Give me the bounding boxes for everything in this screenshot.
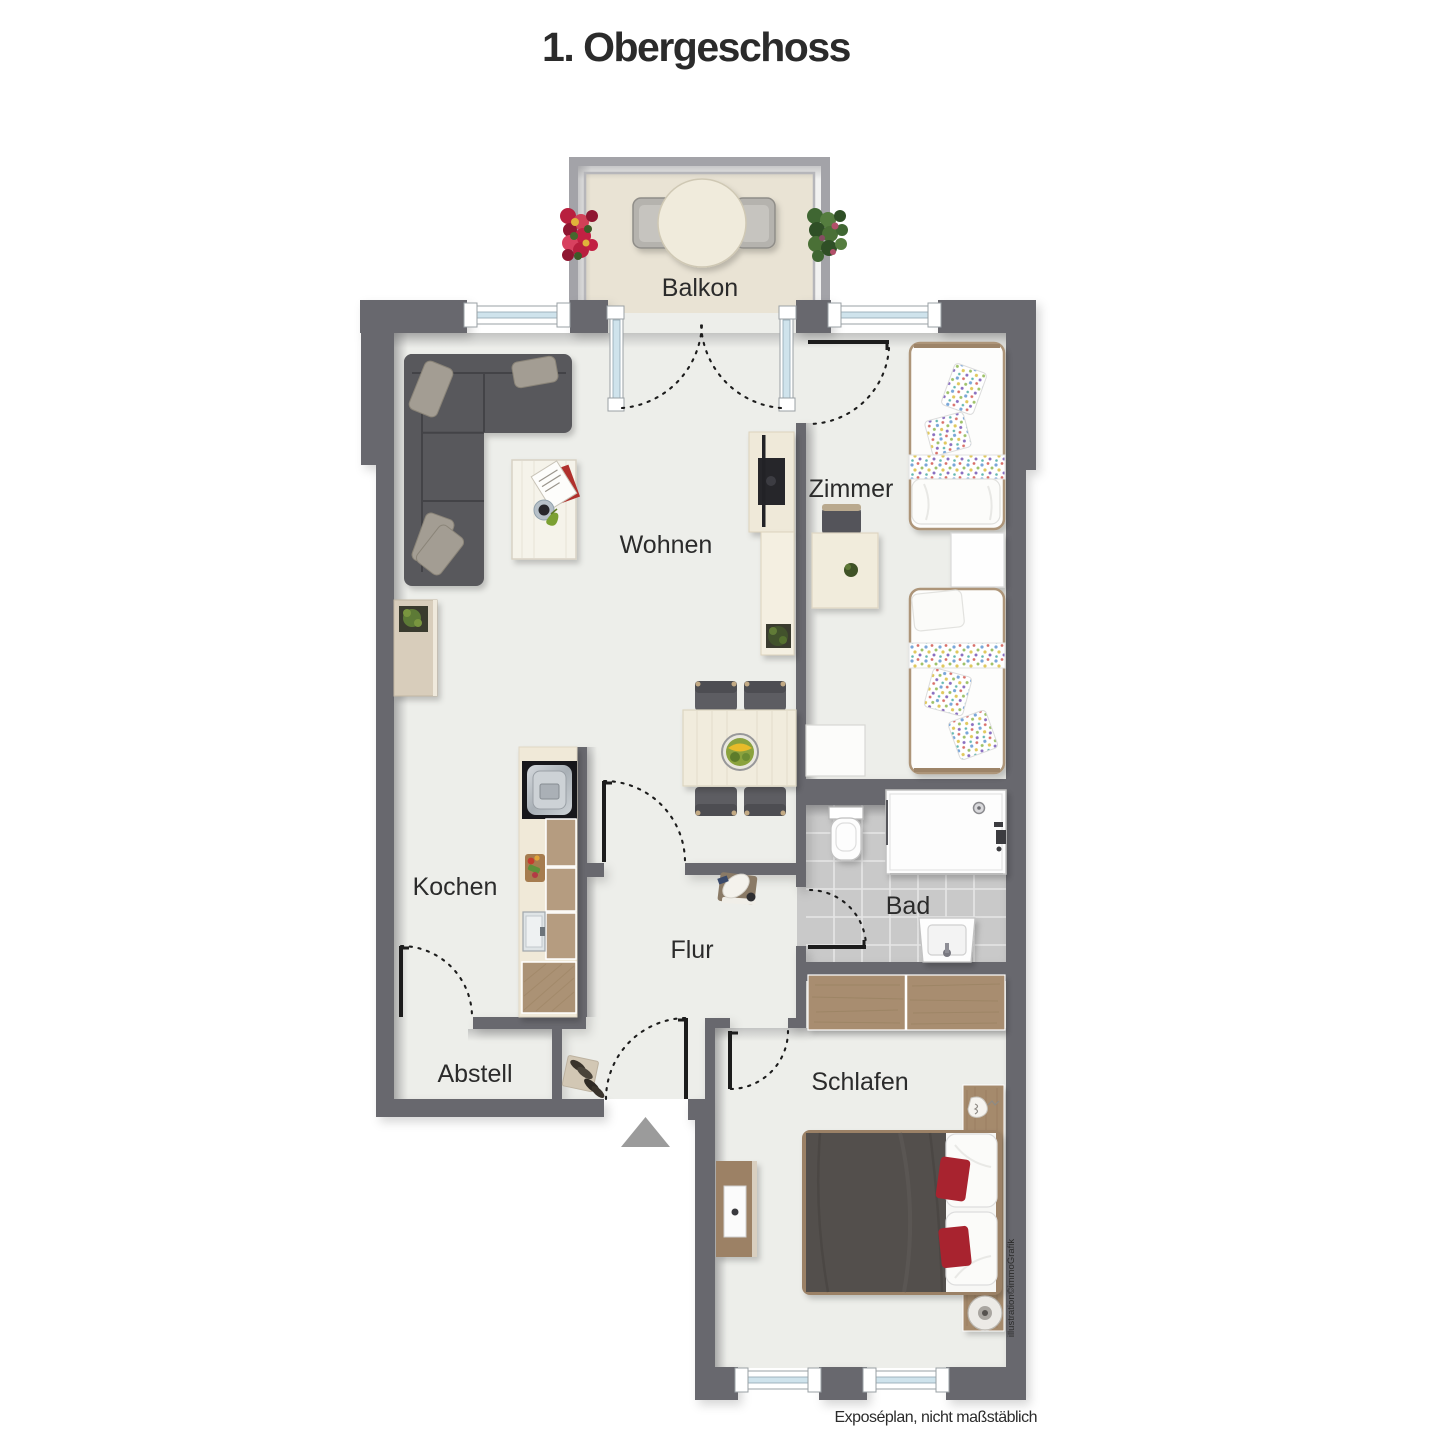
svg-text:Exposéplan, nicht maßstäblich: Exposéplan, nicht maßstäblich — [835, 1409, 1038, 1426]
svg-text:Zimmer: Zimmer — [809, 475, 894, 503]
svg-text:Kochen: Kochen — [413, 873, 498, 901]
svg-text:Bad: Bad — [886, 892, 930, 920]
svg-text:Schlafen: Schlafen — [811, 1068, 908, 1096]
svg-text:1. Obergeschoss: 1. Obergeschoss — [542, 24, 851, 70]
svg-text:Abstell: Abstell — [437, 1060, 512, 1088]
svg-text:Wohnen: Wohnen — [620, 531, 713, 559]
svg-text:Balkon: Balkon — [662, 274, 738, 302]
svg-text:illustration©immoGrafik: illustration©immoGrafik — [1006, 1239, 1017, 1338]
svg-text:Flur: Flur — [670, 936, 713, 964]
